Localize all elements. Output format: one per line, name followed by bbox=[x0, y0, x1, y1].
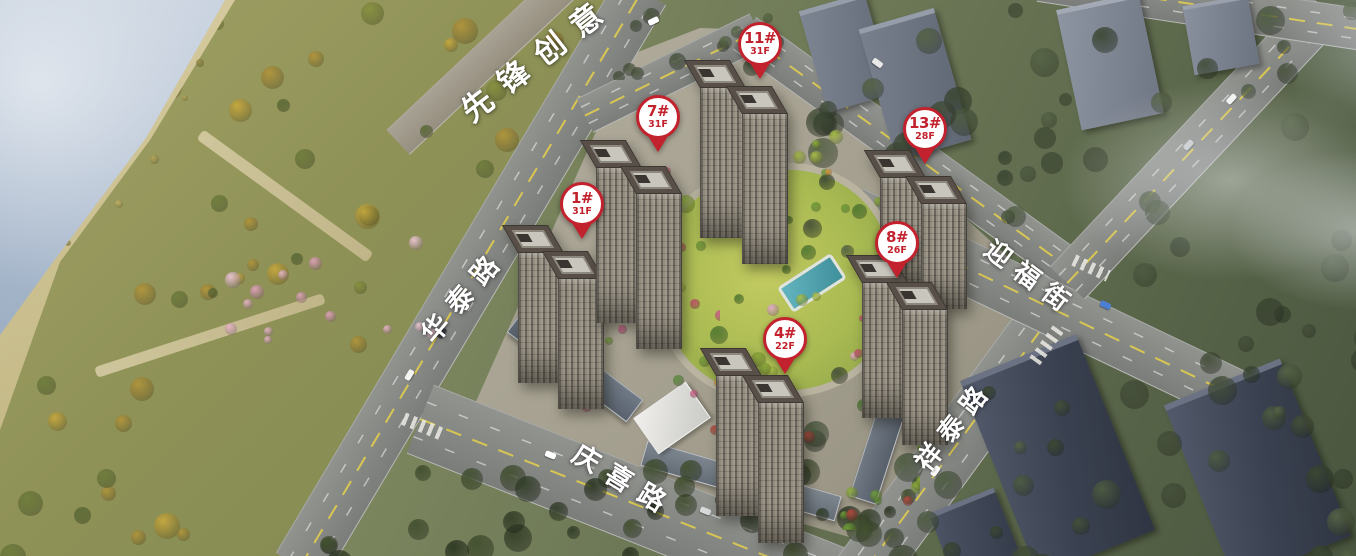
pin-tail bbox=[915, 148, 935, 164]
building-pin-1[interactable]: 1#31F bbox=[560, 182, 604, 239]
aerial-site-plan: 先锋创意 华泰路 庆喜路 祥泰路 迎福街 1#31F 7#31F 11#31F … bbox=[0, 0, 1356, 556]
foliage-blossoms bbox=[215, 225, 445, 355]
pin-floors: 26F bbox=[887, 246, 907, 256]
pin-floors: 31F bbox=[750, 47, 770, 57]
pin-number: 1# bbox=[571, 191, 593, 206]
building-pin-4[interactable]: 4#22F bbox=[763, 317, 807, 374]
pin-tail bbox=[648, 136, 668, 152]
pin-number: 11# bbox=[744, 31, 776, 46]
pin-number: 8# bbox=[886, 230, 908, 245]
pin-tail bbox=[750, 63, 770, 79]
pin-floors: 31F bbox=[572, 207, 592, 217]
pin-number: 7# bbox=[647, 104, 669, 119]
building-pin-8[interactable]: 8#26F bbox=[875, 221, 919, 278]
pin-floors: 31F bbox=[648, 120, 668, 130]
pin-tail bbox=[775, 358, 795, 374]
pin-tail bbox=[572, 223, 592, 239]
building-pin-11[interactable]: 11#31F bbox=[738, 22, 782, 79]
building-pin-7[interactable]: 7#31F bbox=[636, 95, 680, 152]
pin-tail bbox=[887, 262, 907, 278]
pin-number: 13# bbox=[909, 116, 941, 131]
pin-floors: 22F bbox=[775, 342, 795, 352]
pin-floors: 28F bbox=[915, 132, 935, 142]
building-pin-13[interactable]: 13#28F bbox=[903, 107, 947, 164]
pin-number: 4# bbox=[774, 326, 796, 341]
